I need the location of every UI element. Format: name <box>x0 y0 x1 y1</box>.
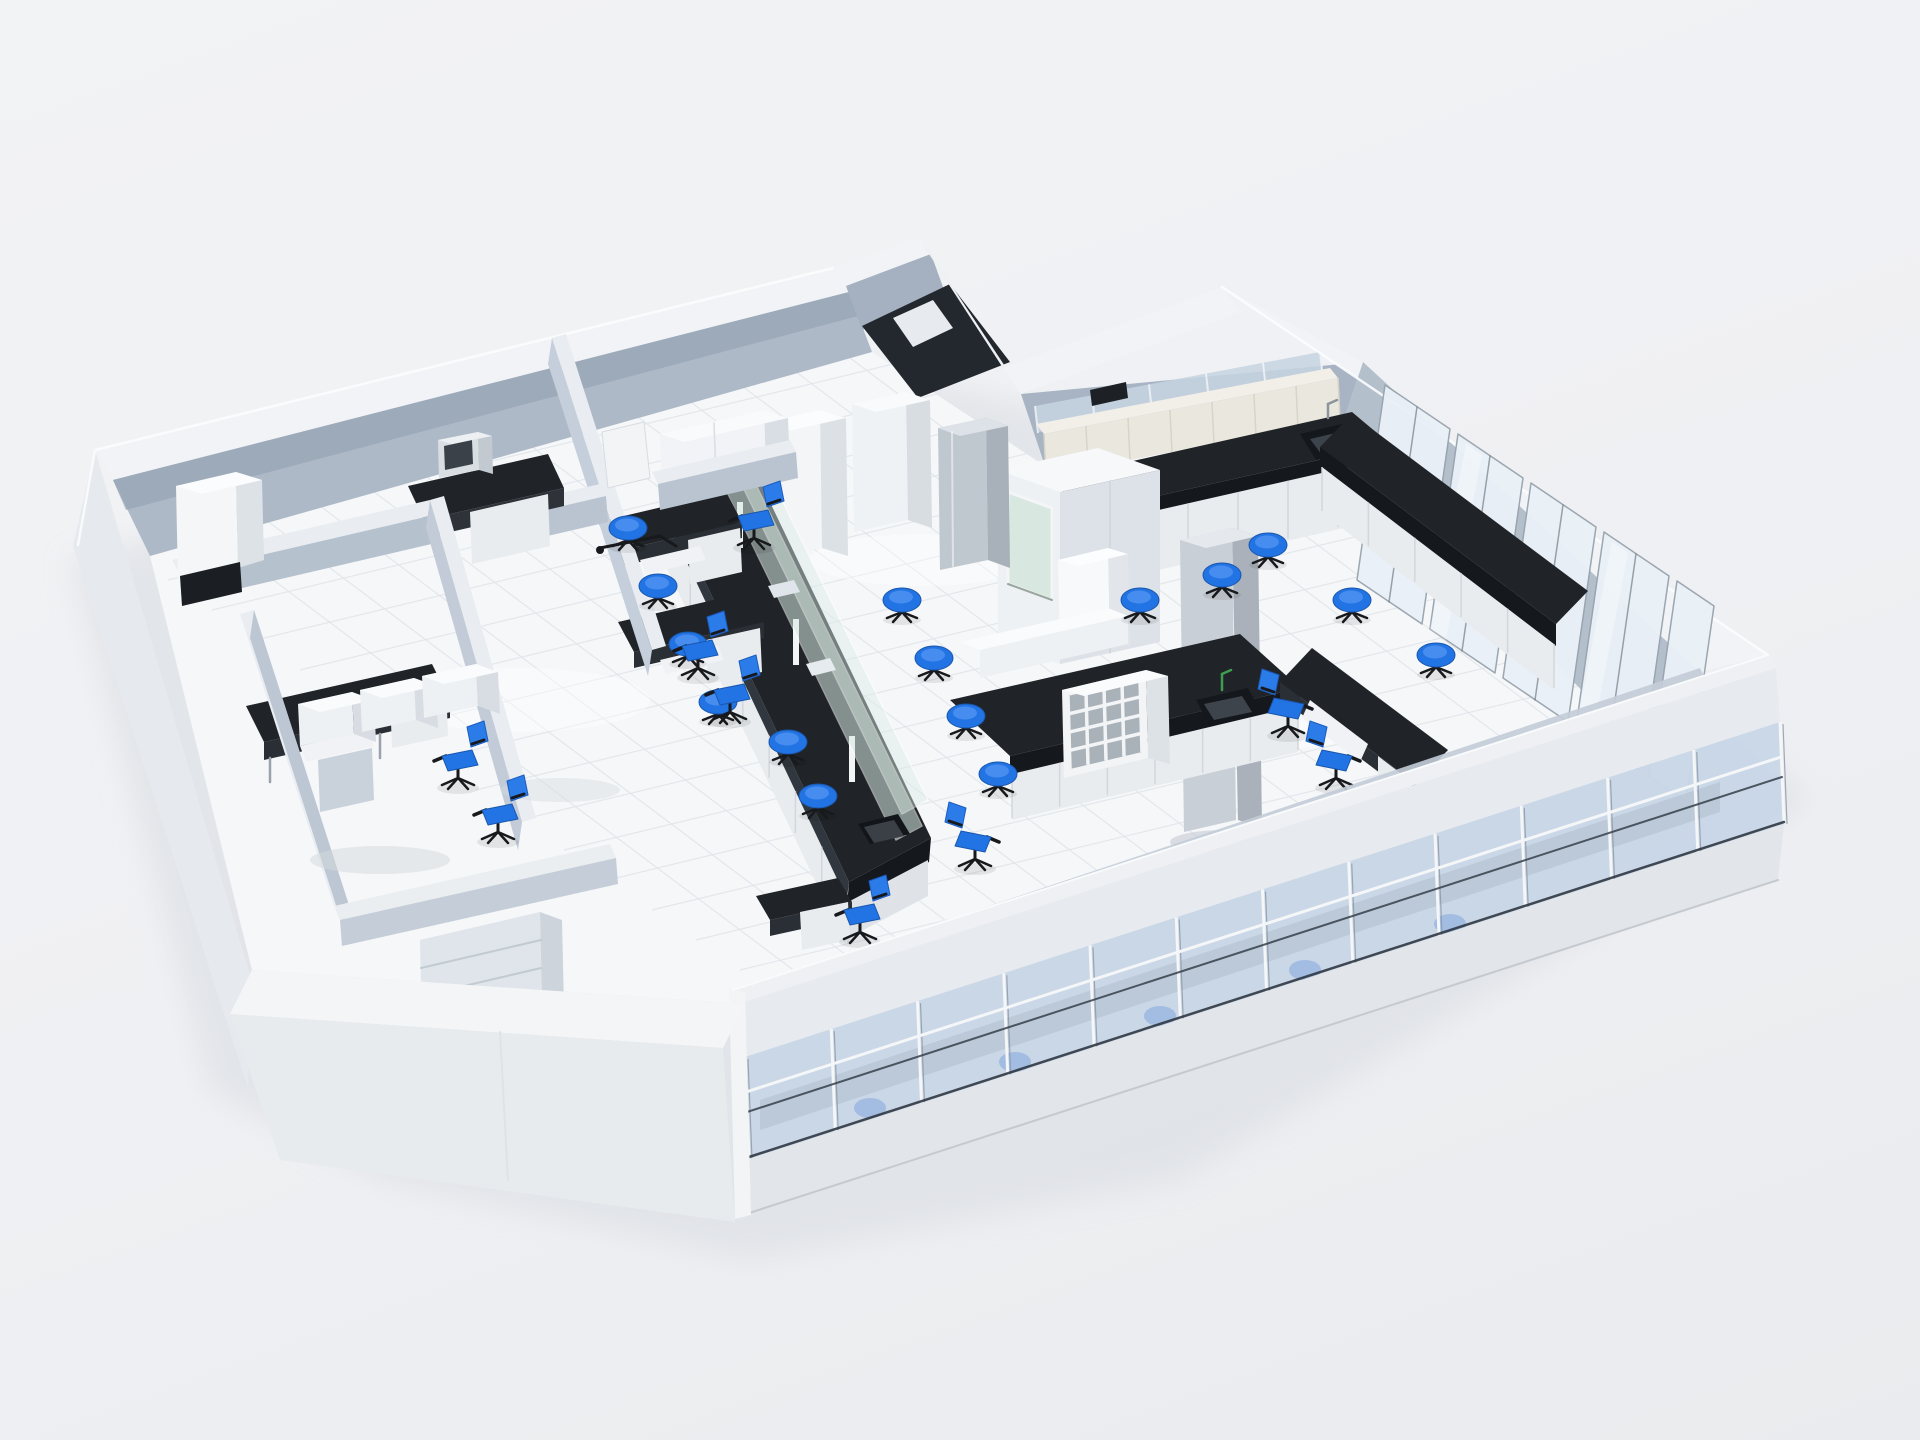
ell <box>921 649 945 662</box>
ell <box>985 765 1009 778</box>
tall-cabinet-side <box>820 410 848 556</box>
lab-stool <box>915 646 953 683</box>
ell <box>1339 591 1363 604</box>
ell <box>645 577 669 590</box>
lab-stool <box>1203 563 1241 600</box>
laboratory-isometric-render <box>0 0 1920 1440</box>
lab-stool <box>799 784 837 821</box>
ell <box>1423 646 1447 659</box>
tall-cabinet-side <box>906 392 932 528</box>
lab-stool <box>1249 533 1287 570</box>
ell <box>805 787 829 800</box>
door-leaf <box>602 422 650 488</box>
ell <box>1209 566 1233 579</box>
chrome-cabinet-glare <box>952 432 953 566</box>
room-shadow <box>310 846 450 874</box>
lab-stool <box>639 574 677 611</box>
fume-hood-sash <box>1008 492 1052 600</box>
lab-stool <box>609 516 647 553</box>
ell <box>1127 591 1151 604</box>
lab-stool <box>769 730 807 767</box>
tall-cabinet-front <box>852 392 908 532</box>
chrome-cabinet-front <box>938 418 988 570</box>
ell <box>615 519 639 532</box>
wall-arm-joint <box>596 546 604 554</box>
lab-3d-render-page <box>0 0 1920 1440</box>
ell <box>1255 536 1279 549</box>
behind-glass-stool <box>999 1052 1031 1072</box>
lab-stool <box>1121 588 1159 625</box>
cubby-side <box>1146 670 1170 764</box>
chrome-cabinet-side <box>986 418 1010 568</box>
lab-stool <box>947 704 985 741</box>
ell <box>889 591 913 604</box>
ell <box>953 707 977 720</box>
lab-stool <box>883 588 921 625</box>
ell <box>775 733 799 746</box>
freezer-side <box>236 472 264 568</box>
lab-stool <box>979 762 1017 799</box>
lab-stool <box>1417 643 1455 680</box>
lab-stool <box>1333 588 1371 625</box>
